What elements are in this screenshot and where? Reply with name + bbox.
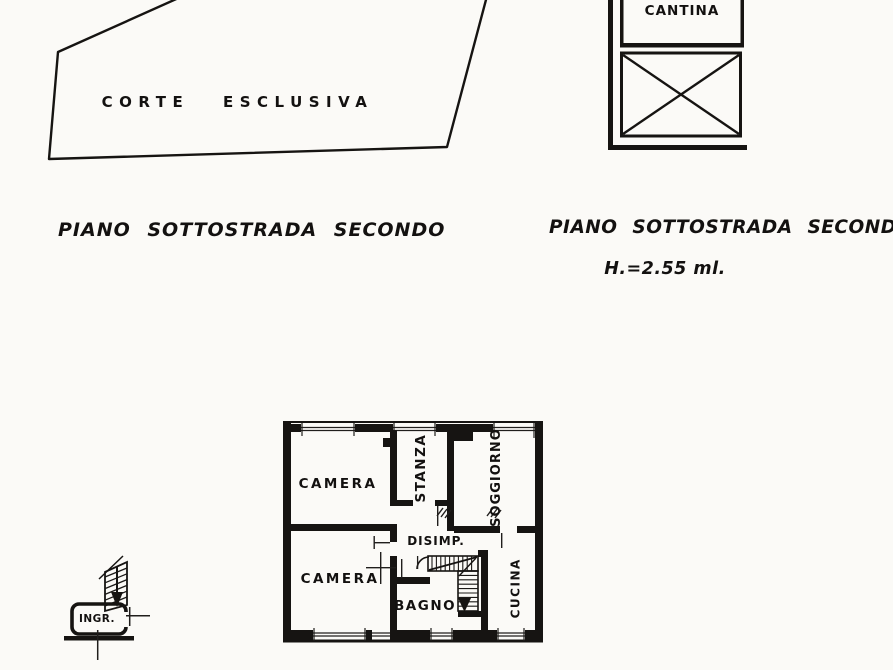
- entrance-annex: [64, 556, 150, 660]
- caption-left-title: PIANO SOTTOSTRADA SECONDO: [58, 221, 402, 241]
- room-label-camera-1: CAMERA: [290, 477, 386, 491]
- floorplan-sheet: CORTE ESCLUSIVA CANTINA PIANO SOTTOSTRAD…: [0, 0, 893, 670]
- cantina-boundary-bottom: [608, 145, 747, 150]
- room-label-stanza: STANZA: [414, 428, 428, 508]
- label-cantina: CANTINA: [632, 4, 732, 18]
- stairs-down-arrow: [458, 598, 471, 612]
- corte-esclusiva-outline: [49, 0, 487, 159]
- crossed-box: [622, 53, 741, 136]
- room-label-disimpegno: DISIMP.: [405, 535, 467, 548]
- label-corte-esclusiva: CORTE ESCLUSIVA: [95, 95, 380, 111]
- room-label-soggiorno: SOGGIORNO: [490, 431, 504, 527]
- caption-right-title: PIANO SOTTOSTRADA SECONDO: [549, 218, 871, 237]
- label-ingresso: INGR.: [74, 614, 120, 625]
- cantina-block: [608, 0, 747, 150]
- room-label-camera-2: CAMERA: [292, 572, 388, 586]
- caption-height-note: H.=2.55 ml.: [600, 260, 730, 278]
- room-label-cucina: CUCINA: [510, 553, 523, 623]
- cantina-boundary-left: [608, 0, 613, 150]
- room-label-bagno: BAGNO: [394, 599, 452, 613]
